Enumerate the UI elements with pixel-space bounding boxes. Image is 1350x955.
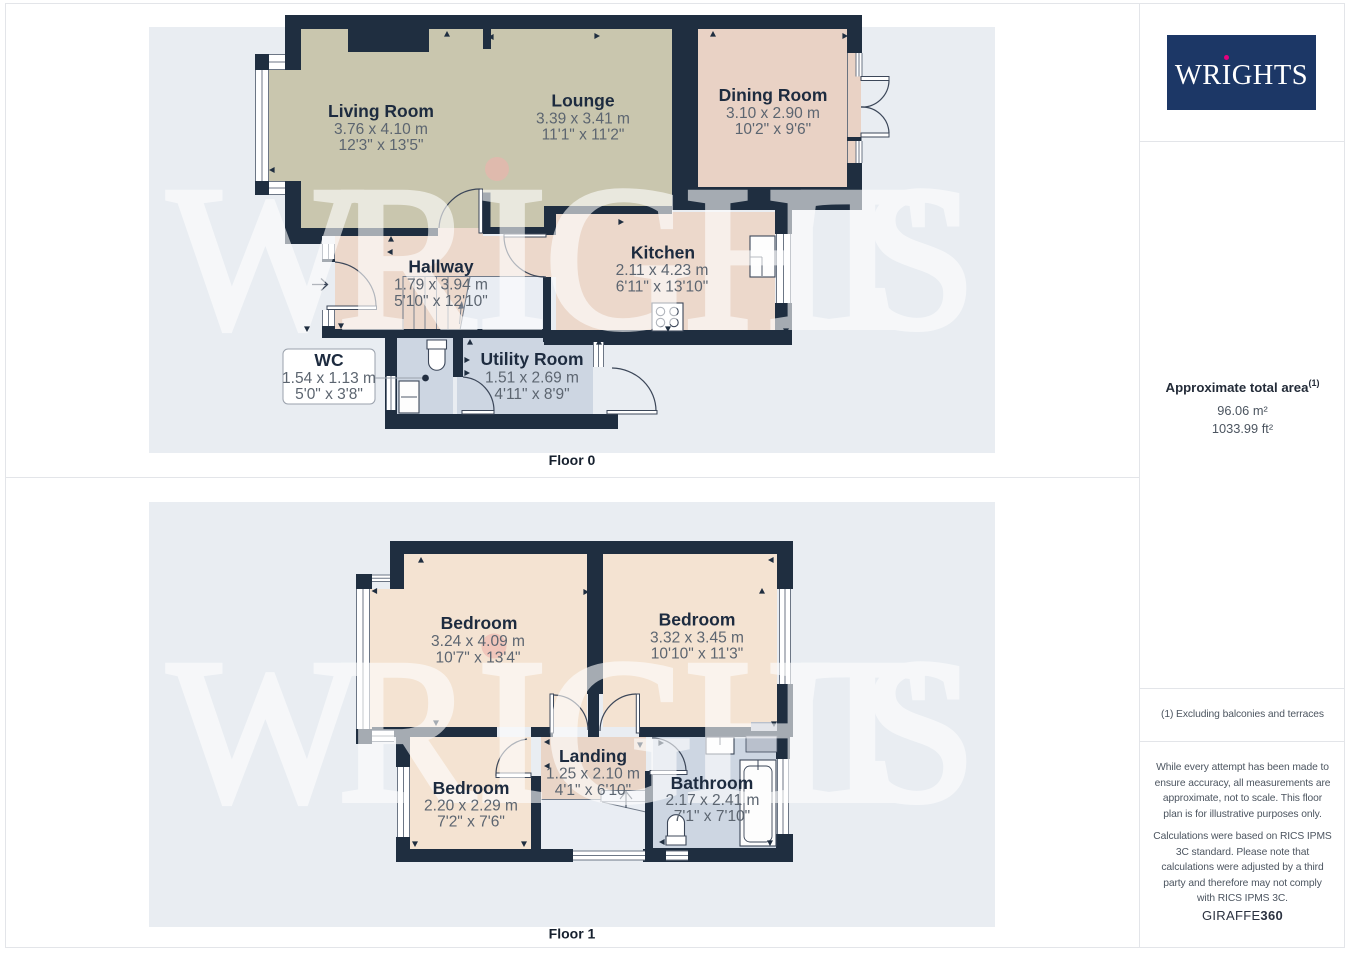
svg-text:Bedroom: Bedroom bbox=[441, 613, 518, 633]
svg-text:2.11 x 4.23 m: 2.11 x 4.23 m bbox=[616, 262, 709, 279]
svg-text:WRIGHTS: WRIGHTS bbox=[168, 618, 976, 845]
svg-text:Dining Room: Dining Room bbox=[719, 85, 828, 105]
svg-text:7'2" x 7'6": 7'2" x 7'6" bbox=[437, 814, 505, 831]
svg-text:7'1" x 7'10": 7'1" x 7'10" bbox=[674, 808, 750, 825]
svg-text:4'1" x 6'10": 4'1" x 6'10" bbox=[555, 782, 631, 799]
svg-text:Lounge: Lounge bbox=[551, 91, 614, 111]
svg-text:10'7" x 13'4": 10'7" x 13'4" bbox=[435, 650, 520, 667]
svg-text:1.51 x 2.69 m: 1.51 x 2.69 m bbox=[485, 370, 579, 387]
svg-text:3.24 x 4.09 m: 3.24 x 4.09 m bbox=[431, 633, 525, 650]
svg-text:12'3" x 13'5": 12'3" x 13'5" bbox=[338, 137, 423, 154]
svg-text:3.39 x 3.41 m: 3.39 x 3.41 m bbox=[536, 111, 630, 128]
svg-text:Floor 0: Floor 0 bbox=[549, 452, 596, 468]
svg-text:3.76 x 4.10 m: 3.76 x 4.10 m bbox=[334, 121, 428, 138]
svg-text:2.20 x 2.29 m: 2.20 x 2.29 m bbox=[424, 798, 518, 815]
svg-text:WC: WC bbox=[314, 350, 344, 370]
svg-text:10'2" x 9'6": 10'2" x 9'6" bbox=[735, 121, 811, 138]
svg-text:Bathroom: Bathroom bbox=[671, 773, 754, 793]
svg-text:Floor 1: Floor 1 bbox=[549, 926, 596, 942]
svg-text:Utility Room: Utility Room bbox=[480, 349, 583, 369]
svg-text:5'10" x 12'10": 5'10" x 12'10" bbox=[394, 293, 488, 310]
svg-text:1.79 x 3.94 m: 1.79 x 3.94 m bbox=[394, 277, 488, 294]
svg-text:Bedroom: Bedroom bbox=[433, 778, 510, 798]
svg-text:10'10" x 11'3": 10'10" x 11'3" bbox=[651, 646, 743, 663]
svg-text:1.25 x 2.10 m: 1.25 x 2.10 m bbox=[546, 766, 640, 783]
svg-text:1.54 x 1.13 m: 1.54 x 1.13 m bbox=[282, 370, 376, 387]
svg-text:Hallway: Hallway bbox=[408, 257, 473, 277]
svg-text:Living Room: Living Room bbox=[328, 101, 434, 121]
svg-text:11'1" x 11'2": 11'1" x 11'2" bbox=[542, 127, 625, 144]
svg-text:Landing: Landing bbox=[559, 746, 627, 766]
svg-text:4'11" x 8'9": 4'11" x 8'9" bbox=[494, 386, 569, 403]
svg-text:3.32 x 3.45 m: 3.32 x 3.45 m bbox=[650, 630, 744, 647]
svg-text:2.17 x 2.41 m: 2.17 x 2.41 m bbox=[666, 792, 760, 809]
svg-text:WRIGHTS: WRIGHTS bbox=[168, 145, 976, 372]
svg-text:3.10 x 2.90 m: 3.10 x 2.90 m bbox=[726, 105, 820, 122]
svg-text:Kitchen: Kitchen bbox=[631, 243, 695, 263]
svg-text:6'11" x 13'10": 6'11" x 13'10" bbox=[616, 279, 708, 296]
svg-text:5'0" x 3'8": 5'0" x 3'8" bbox=[295, 386, 363, 403]
svg-text:Bedroom: Bedroom bbox=[659, 610, 736, 630]
